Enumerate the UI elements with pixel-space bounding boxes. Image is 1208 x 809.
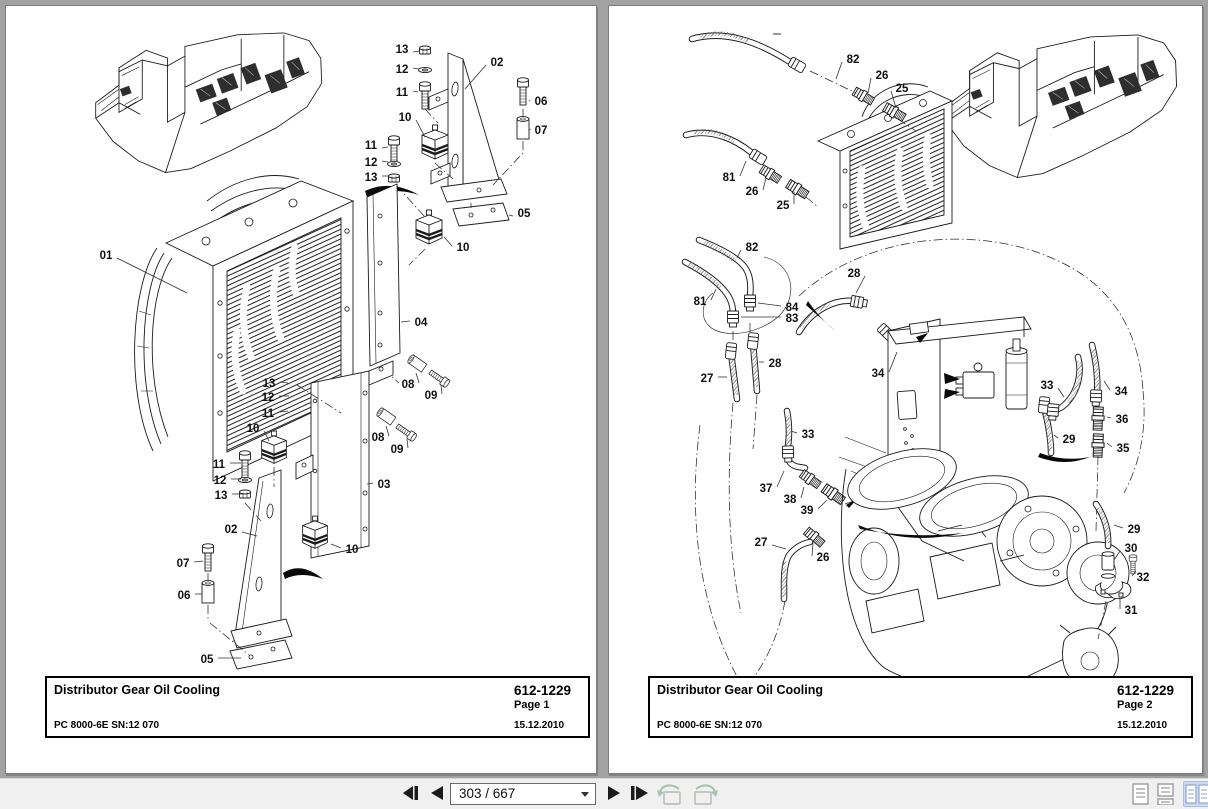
callout-leader xyxy=(407,439,408,448)
callout-label-26: 26 xyxy=(746,186,759,198)
callout-label-34: 34 xyxy=(872,368,885,380)
callout-label-83: 83 xyxy=(786,313,799,325)
callout-leader xyxy=(1054,435,1058,438)
callout-label-11: 11 xyxy=(262,408,275,420)
next-view-button[interactable] xyxy=(690,784,720,804)
callout-label-26: 26 xyxy=(817,552,830,564)
callout-leader xyxy=(509,215,513,216)
pdf-page-2: 8226258126258281848328272834333738392726… xyxy=(608,5,1203,774)
callout-label-12: 12 xyxy=(262,392,275,404)
callout-label-08: 08 xyxy=(372,432,385,444)
callout-leader xyxy=(416,373,419,383)
callout-label-13: 13 xyxy=(365,172,378,184)
callout-label-12: 12 xyxy=(396,64,409,76)
callout-label-06: 06 xyxy=(178,590,191,602)
page-number-combobox[interactable]: 303 / 667 xyxy=(450,783,596,805)
callout-label-10: 10 xyxy=(247,423,260,435)
continuous-view-icon xyxy=(1157,783,1175,805)
callout-leader xyxy=(382,161,388,162)
callout-leader xyxy=(818,500,827,509)
callout-label-27: 27 xyxy=(701,373,714,385)
callout-label-37: 37 xyxy=(760,483,773,495)
callout-label-26: 26 xyxy=(876,70,889,82)
continuous-view-button[interactable] xyxy=(1157,783,1175,808)
callout-label-10: 10 xyxy=(457,242,470,254)
callout-label-01: 01 xyxy=(100,250,113,262)
callout-label-13: 13 xyxy=(263,378,276,390)
gearbox-assembly xyxy=(695,239,1144,689)
exploded-diagram-page-2: 8226258126258281848328272834333738392726… xyxy=(609,6,1202,773)
callout-label-06: 06 xyxy=(535,96,548,108)
callout-label-05: 05 xyxy=(201,654,214,666)
callout-label-34: 34 xyxy=(1115,386,1128,398)
callout-leader xyxy=(812,543,813,556)
callout-leader xyxy=(1107,417,1111,418)
callout-label-03: 03 xyxy=(378,479,391,491)
callout-label-25: 25 xyxy=(777,200,790,212)
last-page-button[interactable] xyxy=(628,784,650,804)
drawing-title: Distributor Gear Oil Cooling xyxy=(54,683,220,697)
callout-leader xyxy=(1107,443,1112,447)
callout-label-02: 02 xyxy=(225,524,238,536)
single-page-view-icon xyxy=(1132,783,1150,805)
callout-label-04: 04 xyxy=(415,317,428,329)
machine-overview-inset xyxy=(96,33,322,173)
callout-leader xyxy=(441,385,442,394)
hose-27-bottom xyxy=(748,526,826,685)
callout-label-27: 27 xyxy=(755,537,768,549)
exploded-diagram-page-1: 1312110206071011121305100104131211080908… xyxy=(6,6,596,773)
machine-overview-inset xyxy=(946,35,1177,178)
facing-pages-view-icon xyxy=(1184,782,1208,806)
callout-label-07: 07 xyxy=(535,125,548,137)
callout-leader xyxy=(382,147,388,148)
callout-leader xyxy=(763,178,766,190)
facing-pages-view-button[interactable] xyxy=(1183,781,1208,807)
callout-leader xyxy=(1058,388,1064,397)
callout-leader xyxy=(444,237,452,246)
first-page-icon xyxy=(402,784,422,802)
drawing-page-label: Page 2 xyxy=(1117,699,1152,711)
first-page-button[interactable] xyxy=(401,784,423,804)
callout-label-11: 11 xyxy=(213,459,226,471)
callout-label-13: 13 xyxy=(215,490,228,502)
previous-view-icon xyxy=(655,784,685,806)
callout-label-39: 39 xyxy=(801,505,814,517)
callout-leader xyxy=(801,487,804,498)
callout-label-81: 81 xyxy=(723,172,736,184)
callout-label-10: 10 xyxy=(346,544,359,556)
callout-label-10: 10 xyxy=(399,112,412,124)
callout-leader xyxy=(117,258,187,293)
callout-leader xyxy=(868,78,871,93)
callout-leader xyxy=(529,100,530,101)
callout-label-09: 09 xyxy=(425,390,438,402)
drawing-page-label: Page 1 xyxy=(514,699,549,711)
callout-label-28: 28 xyxy=(848,268,861,280)
previous-view-button[interactable] xyxy=(655,784,685,804)
callout-label-11: 11 xyxy=(396,87,409,99)
title-block: Distributor Gear Oil Cooling 612-1229 Pa… xyxy=(45,676,590,738)
callout-label-29: 29 xyxy=(1063,434,1076,446)
callout-leader xyxy=(772,545,786,549)
callout-label-33: 33 xyxy=(1041,380,1054,392)
callout-label-35: 35 xyxy=(1117,443,1130,455)
callout-label-25: 25 xyxy=(896,83,909,95)
callout-label-33: 33 xyxy=(802,429,815,441)
hoses-27-28 xyxy=(725,333,759,613)
callout-leader xyxy=(386,426,389,436)
callout-label-05: 05 xyxy=(518,208,531,220)
callout-leader xyxy=(836,62,842,79)
bottom-toolbar: 303 / 667 xyxy=(0,778,1208,809)
callout-label-32: 32 xyxy=(1137,572,1150,584)
machine-model: PC 8000-6E SN:12 070 xyxy=(54,720,159,731)
next-view-icon xyxy=(690,784,720,806)
callout-label-38: 38 xyxy=(784,494,797,506)
callout-label-36: 36 xyxy=(1116,414,1129,426)
callout-label-31: 31 xyxy=(1125,605,1138,617)
callout-label-13: 13 xyxy=(396,44,409,56)
callout-leader xyxy=(740,161,746,176)
machine-model: PC 8000-6E SN:12 070 xyxy=(657,720,762,731)
callout-leader xyxy=(413,91,418,92)
callout-label-11: 11 xyxy=(365,140,378,152)
callout-label-30: 30 xyxy=(1125,543,1138,555)
callout-leader xyxy=(711,289,716,300)
callout-leader xyxy=(401,321,410,322)
drawing-number: 612-1229 xyxy=(514,683,571,698)
callout-leader xyxy=(758,303,781,306)
callout-leader xyxy=(777,471,784,487)
callout-leader xyxy=(416,120,425,137)
chevron-down-icon xyxy=(581,792,589,797)
callout-label-82: 82 xyxy=(746,242,759,254)
page-number-value: 303 / 667 xyxy=(459,786,515,801)
next-page-icon xyxy=(604,784,622,802)
callout-label-07: 07 xyxy=(177,558,190,570)
drawing-date: 15.12.2010 xyxy=(514,720,564,731)
callout-label-28: 28 xyxy=(769,358,782,370)
previous-page-button[interactable] xyxy=(427,784,449,804)
callout-label-82: 82 xyxy=(847,54,860,66)
callout-leader xyxy=(413,51,420,52)
drawing-title: Distributor Gear Oil Cooling xyxy=(657,683,823,697)
hose-28-center xyxy=(799,295,868,332)
callout-leader xyxy=(194,561,203,562)
callout-leader xyxy=(737,250,741,258)
next-page-button[interactable] xyxy=(602,784,624,804)
drawing-number: 612-1229 xyxy=(1117,683,1174,698)
callout-label-08: 08 xyxy=(402,379,415,391)
callout-label-02: 02 xyxy=(491,57,504,69)
callout-leader xyxy=(413,68,419,69)
pdf-page-1: 1312110206071011121305100104131211080908… xyxy=(5,5,597,774)
callout-label-12: 12 xyxy=(365,157,378,169)
callout-label-12: 12 xyxy=(214,475,227,487)
callout-leader xyxy=(1104,381,1110,390)
document-canvas[interactable]: 1312110206071011121305100104131211080908… xyxy=(0,0,1208,779)
drawing-date: 15.12.2010 xyxy=(1117,720,1167,731)
callout-label-81: 81 xyxy=(694,296,707,308)
callout-label-29: 29 xyxy=(1128,524,1141,536)
last-page-icon xyxy=(629,784,649,802)
title-block: Distributor Gear Oil Cooling 612-1229 Pa… xyxy=(648,676,1193,738)
previous-page-icon xyxy=(429,784,447,802)
callout-leader xyxy=(1114,525,1123,528)
callout-label-09: 09 xyxy=(391,444,404,456)
single-page-view-button[interactable] xyxy=(1132,783,1150,808)
